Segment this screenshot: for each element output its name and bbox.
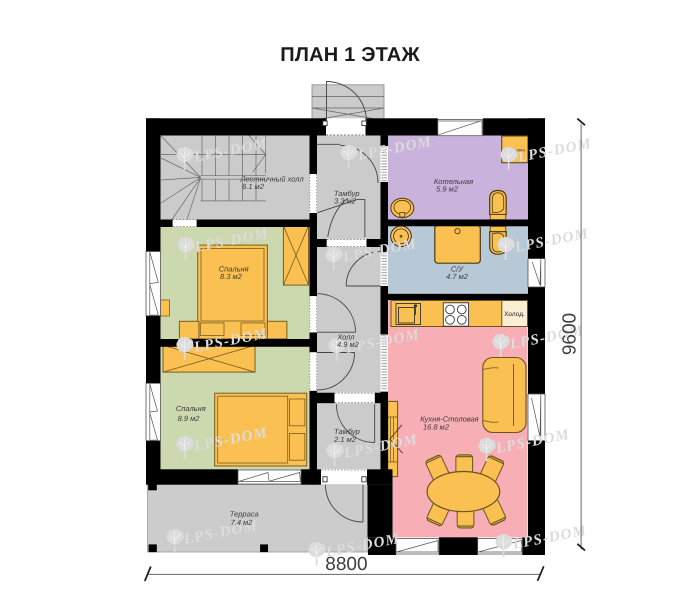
svg-text:7.4 м2: 7.4 м2 [231,518,254,527]
svg-text:4.7 м2: 4.7 м2 [446,272,469,281]
svg-text:5.9 м2: 5.9 м2 [436,185,459,194]
svg-text:2.1 м2: 2.1 м2 [333,435,357,444]
svg-text:16.8 м2: 16.8 м2 [423,423,450,432]
svg-text:8.9 м2: 8.9 м2 [178,414,201,423]
svg-text:8800: 8800 [325,554,367,575]
svg-text:8.3 м2: 8.3 м2 [220,272,243,281]
svg-text:Спальня: Спальня [176,404,206,413]
svg-text:6.1 м2: 6.1 м2 [242,182,265,191]
svg-text:4.9 м2: 4.9 м2 [337,340,360,349]
svg-text:3.3 м2: 3.3 м2 [334,197,357,206]
svg-text:Холод.: Холод. [504,311,525,318]
svg-text:9600: 9600 [559,313,580,355]
